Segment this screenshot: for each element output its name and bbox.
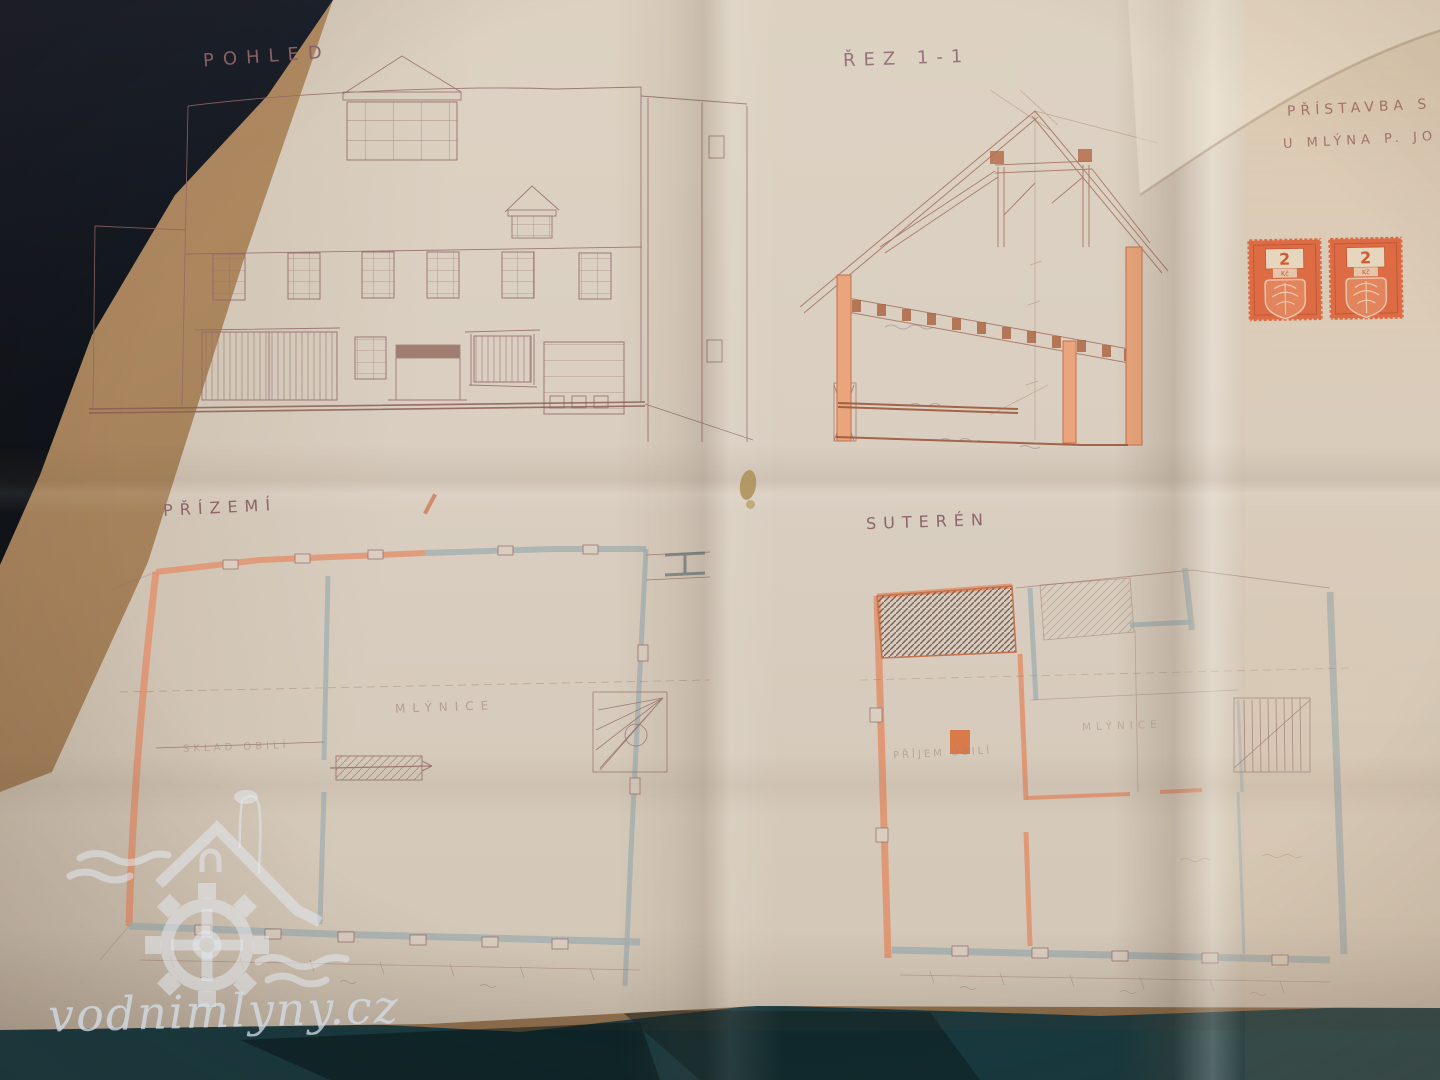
photo-of-architectural-drawing: POHLED ŘEZ 1-1 PŘÍZEMÍ SUTERÉN PŘÍSTAVBA… xyxy=(0,0,1440,1080)
watermark-site-name: vodnimlyny.cz xyxy=(47,979,400,1042)
